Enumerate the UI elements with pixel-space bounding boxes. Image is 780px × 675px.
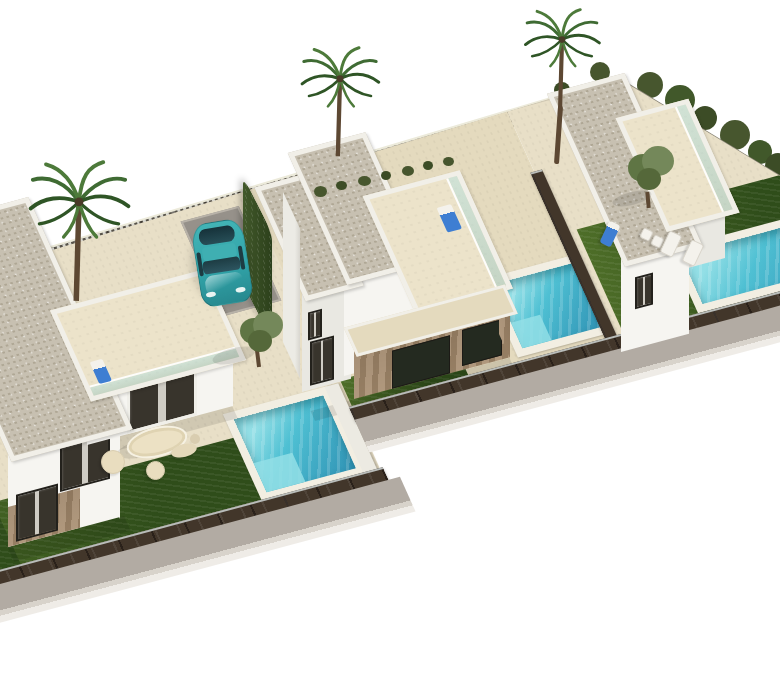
- pouffe-b: [146, 461, 165, 480]
- shrub: [381, 171, 391, 180]
- palm-tree-left: [24, 160, 134, 303]
- planter-pot: [190, 434, 200, 444]
- palm-tree-right: [520, 8, 604, 116]
- shrub: [443, 157, 454, 166]
- palm-tree-middle: [294, 46, 386, 158]
- shrub-row: [314, 186, 327, 197]
- olive-right-foliage-c: [637, 168, 661, 190]
- villa-left-roof-lounger: [89, 359, 111, 384]
- villa-middle-wing-small-window: [308, 309, 322, 341]
- pouffe-a: [101, 450, 125, 474]
- olive-left-foliage-c: [248, 330, 272, 352]
- villa-middle-wing-tall-window: [310, 335, 334, 385]
- shrub: [358, 176, 371, 186]
- shrub: [423, 161, 433, 170]
- villa-right-front-window: [635, 273, 653, 310]
- render-canvas: [0, 0, 780, 675]
- villa-middle-roof-lounger: [436, 204, 462, 232]
- shrub: [402, 166, 414, 176]
- shrub: [336, 181, 347, 190]
